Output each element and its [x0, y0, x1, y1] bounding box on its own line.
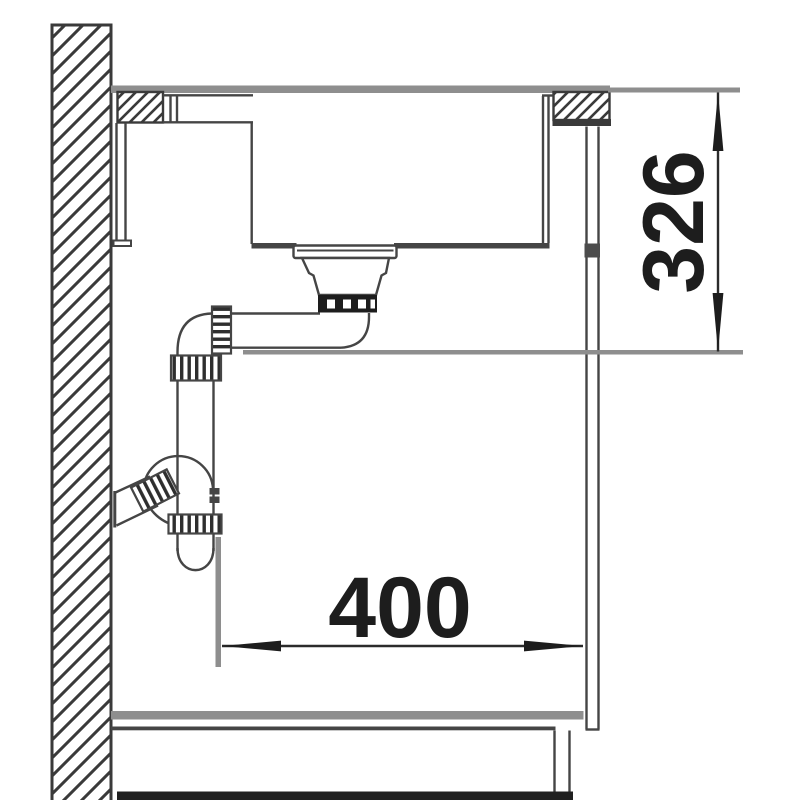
bowl-right-wall — [543, 96, 549, 243]
extension-line-left — [216, 537, 222, 667]
left-elbow-outer — [178, 314, 213, 357]
dimension-width-label: 400 — [328, 560, 472, 656]
pipe-joint-mark — [210, 497, 220, 504]
coupling-nut-horizontal-pipe — [212, 307, 231, 354]
countertop-right-bottom-edge — [553, 119, 612, 126]
bowl-bottom-right — [394, 243, 550, 249]
sink-bowl — [114, 95, 554, 249]
wall-section — [52, 25, 111, 800]
arrow-left-icon — [222, 641, 281, 652]
cabinet-bottom-shelf — [111, 711, 584, 720]
cabinet-front-fitting — [585, 244, 601, 258]
strainer-funnel — [302, 258, 389, 295]
strainer-thread-slot — [371, 300, 376, 309]
countertop-surface — [111, 86, 610, 94]
countertop-right-cut — [554, 92, 610, 120]
cabinet-front-panel — [587, 127, 599, 730]
floor-line — [117, 792, 573, 800]
cabinet-bottom-shelf-edge — [111, 727, 556, 731]
coupling-nut-diagonal — [131, 469, 179, 511]
arrow-down-icon — [713, 293, 724, 352]
extension-line-bottom — [243, 350, 743, 355]
countertop-left-cut — [118, 92, 164, 123]
plinth-panel — [555, 731, 570, 793]
dimension-height-label: 326 — [626, 150, 722, 294]
coupling-nut-upper — [171, 356, 221, 381]
tailpipe-elbow-outer — [341, 313, 369, 348]
strainer-thread-slot — [343, 300, 351, 309]
strainer-flange — [294, 246, 397, 259]
drain-trap-pipes — [115, 307, 369, 571]
diagram-drawing: 326 400 — [0, 0, 800, 800]
sink-rim-left — [163, 95, 253, 122]
sink-left-apron-foot — [114, 241, 132, 247]
trap-cup-bottom — [178, 548, 214, 570]
dimension-width-400: 400 — [216, 537, 584, 667]
countertop — [111, 86, 611, 127]
wall-hatching — [52, 25, 111, 800]
arrow-right-icon — [524, 641, 583, 652]
bowl-bottom-left — [252, 243, 297, 249]
extension-line-top — [608, 88, 740, 93]
arrow-up-icon — [713, 93, 724, 152]
cabinet — [111, 127, 600, 800]
coupling-nut-lower — [169, 515, 222, 534]
sink-left-apron — [117, 123, 126, 242]
pipe-joint-mark — [210, 488, 220, 495]
strainer-thread-slot — [358, 300, 366, 309]
drain-strainer — [294, 246, 397, 313]
horizontal-drain-pipe — [231, 314, 341, 348]
strainer-thread-slot — [327, 300, 335, 309]
sink-installation-diagram: 326 400 — [0, 0, 800, 800]
